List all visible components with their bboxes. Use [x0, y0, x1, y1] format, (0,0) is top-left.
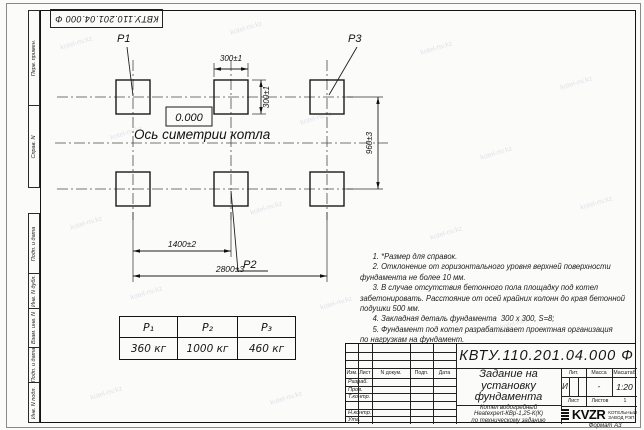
margin-cell-podp-data-1: Подп. и дата — [28, 213, 40, 274]
company-name: КОТЕЛЬНЫЙ ЗАВОД РЭП — [608, 410, 637, 420]
scale-label: Масштаб — [612, 368, 637, 377]
format-label: Формат А3 — [575, 423, 635, 429]
mass-value: - — [586, 377, 612, 396]
kvzr-logo-text: KVZR — [572, 407, 605, 422]
dim-row-spacing: 960±3 — [347, 97, 383, 189]
dim-col-spacing-1-text: 1400±2 — [168, 239, 197, 249]
rev-col-ndokum: N докум. — [372, 368, 410, 378]
rev-col-list: Лист — [358, 368, 372, 378]
role-tkontr: Т.контр. — [346, 393, 374, 401]
doc-object-line: по техническому заданию — [471, 418, 545, 424]
drawing-sheet: kotel-nv.kz kotel-nv.kz kotel-nv.kz kote… — [0, 0, 644, 430]
load-table-value-p1: 360 кг — [120, 338, 178, 359]
margin-label: Взам. инв. N — [31, 312, 37, 344]
margin-cell-sprav-n: Справ. N — [28, 105, 40, 188]
kvzr-logo-icon — [561, 409, 569, 420]
doc-object: Котел водогрейный Heatexpert-КВр-1,25-К(… — [456, 405, 561, 424]
sheets-label: Листов — [588, 396, 612, 406]
margin-cell-inv-podl: Инв. N подл. — [28, 382, 40, 423]
margin-label: Инв. N подл. — [31, 386, 37, 418]
doc-title: Задание на установку фундамента — [456, 368, 561, 405]
notes-block: 1. *Размер для справок. 2. Отклонение от… — [360, 252, 626, 346]
margin-cell-podp-data-2: Подп. и дата — [28, 347, 40, 383]
lit-label: Лит. — [561, 368, 586, 377]
level-mark-text: 0.000 — [175, 112, 203, 124]
note-line: 3. В случае отсутствия бетонного пола пл… — [360, 283, 626, 293]
margin-label: Инв. N дубл. — [31, 275, 37, 307]
company-name-line: ЗАВОД РЭП — [608, 415, 637, 420]
title-block: Изм. Лист N докум. Подп. Дата Разраб. Пр… — [345, 343, 636, 423]
margin-cell-inv-dubl: Инв. N дубл. — [28, 273, 40, 309]
inverted-doc-number-stamp: КВТУ.110.201.04.000 Ф — [50, 9, 163, 28]
dim-row-spacing-text: 960±3 — [365, 131, 374, 154]
rev-col-podp: Подп. — [410, 368, 433, 378]
rev-col-data: Дата — [433, 368, 456, 378]
role-blank — [346, 401, 374, 409]
role-razrab: Разраб. — [346, 378, 374, 386]
sheets-value: 1 — [618, 396, 632, 406]
dim-pad-width-text: 300±1 — [220, 54, 242, 63]
dim-pad-height-text: 300±1 — [262, 86, 271, 108]
margin-label: Справ. N — [31, 135, 37, 158]
inverted-doc-number-text: КВТУ.110.201.04.000 Ф — [55, 14, 159, 24]
margin-label: Подп. и дата — [31, 348, 37, 382]
mass-label: Масса — [586, 368, 612, 377]
margin-label: Подп. и дата — [31, 226, 37, 260]
p1-label: P1 — [117, 33, 130, 45]
load-table: P₁ P₂ P₃ 360 кг 1000 кг 460 кг — [119, 316, 296, 360]
rev-col-izm: Изм. — [346, 368, 358, 378]
note-line: 1. *Размер для справок. — [360, 252, 626, 262]
scale-value: 1:20 — [612, 377, 637, 396]
p2-label: P2 — [243, 259, 256, 271]
doc-number: КВТУ.110.201.04.000 Ф — [456, 344, 637, 367]
margin-cell-perv-primen: Перв. примен. — [28, 10, 40, 106]
role-utv: Утв. — [346, 416, 374, 424]
load-table-header-p2: P₂ — [178, 317, 238, 338]
note-line: 4. Закладная деталь фундамента 300 х 300… — [360, 314, 626, 324]
dim-col-spacing-total-text: 2800±3 — [215, 264, 245, 274]
axis-caption: Ось симетрии котла — [134, 127, 271, 142]
load-table-header-p1: P₁ — [120, 317, 178, 338]
note-line: подушки 500 мм. — [360, 304, 626, 314]
doc-title-line: фундамента — [475, 392, 543, 404]
note-line: 5. Фундамент под котел разрабатывает про… — [360, 325, 626, 335]
sheet-label: Лист — [561, 396, 586, 406]
note-line: фундамента не более 10 мм. — [360, 273, 626, 283]
margin-cell-vzam-inv: Взам. инв. N — [28, 308, 40, 348]
company-logo-row: KVZR КОТЕЛЬНЫЙ ЗАВОД РЭП — [561, 406, 637, 423]
note-line: 2. Отклонение от горизонтального уровня … — [360, 262, 626, 272]
role-nkontr: Н.контр. — [346, 409, 374, 416]
dim-col-spacing-total: 2800±3 — [133, 212, 327, 282]
lit-value: И — [561, 377, 569, 396]
p3-label: P3 — [348, 33, 362, 45]
role-prov: Пров. — [346, 386, 374, 393]
level-mark: 0.000 — [166, 107, 212, 126]
load-table-header-p3: P₃ — [238, 317, 295, 338]
margin-label: Перв. примен. — [31, 40, 37, 77]
load-table-value-p2: 1000 кг — [178, 338, 238, 359]
load-table-value-p3: 460 кг — [238, 338, 295, 359]
note-line: забетонировать. Расстояние от осей крайн… — [360, 294, 626, 304]
